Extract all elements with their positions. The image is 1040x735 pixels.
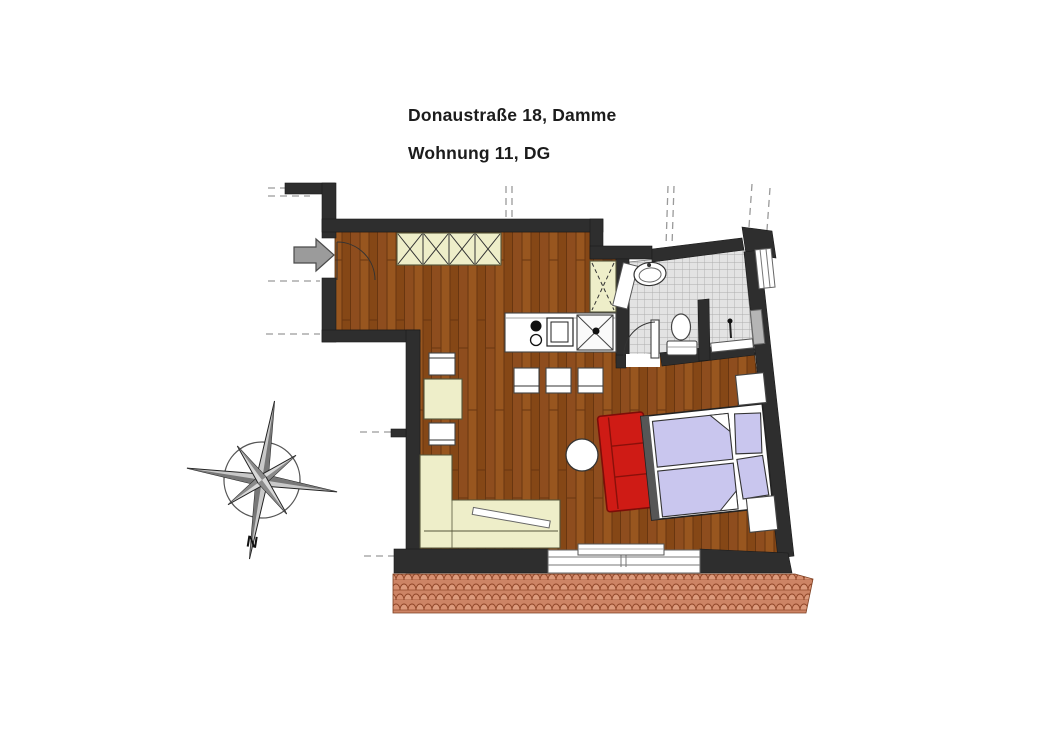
kitchen-counter (505, 313, 616, 352)
entrance-arrow-icon (294, 239, 334, 271)
north-label: N (245, 533, 259, 552)
dining-chair (429, 353, 455, 375)
wardrobe (397, 233, 501, 265)
floor-plan-page: Donaustraße 18, Damme Wohnung 11, DG (0, 0, 1040, 735)
shower-valve (730, 322, 731, 338)
kitchen-sink (577, 315, 613, 350)
radiator (578, 544, 664, 555)
wall-segment (406, 330, 420, 573)
nightstand (746, 496, 777, 533)
tall-cabinet (590, 261, 616, 312)
dining-chair (429, 423, 455, 445)
bar-stool (546, 368, 571, 393)
wall-segment (590, 246, 652, 259)
wall-segment (394, 549, 548, 573)
wall-segment (700, 549, 792, 573)
round-table (566, 439, 598, 471)
bar-stool (578, 368, 603, 393)
wall-segment (322, 219, 603, 232)
wall-stub (391, 429, 406, 437)
floor-plan-drawing: N (0, 0, 1040, 735)
bathroom-door-leaf (651, 320, 659, 358)
bar-stools (514, 368, 603, 393)
pillow (735, 413, 762, 454)
wall-segment (322, 330, 420, 342)
cooktop-burner (531, 321, 542, 332)
pillow (737, 455, 769, 499)
oven (547, 318, 573, 346)
compass-rose: N (174, 389, 349, 571)
nightstand (736, 373, 767, 406)
roof-tiles (393, 574, 813, 613)
dining-table (424, 379, 462, 419)
shower-divider-wall (698, 299, 710, 361)
window-right-upper (755, 248, 775, 288)
wall-segment (616, 355, 626, 368)
bar-stool (514, 368, 539, 393)
